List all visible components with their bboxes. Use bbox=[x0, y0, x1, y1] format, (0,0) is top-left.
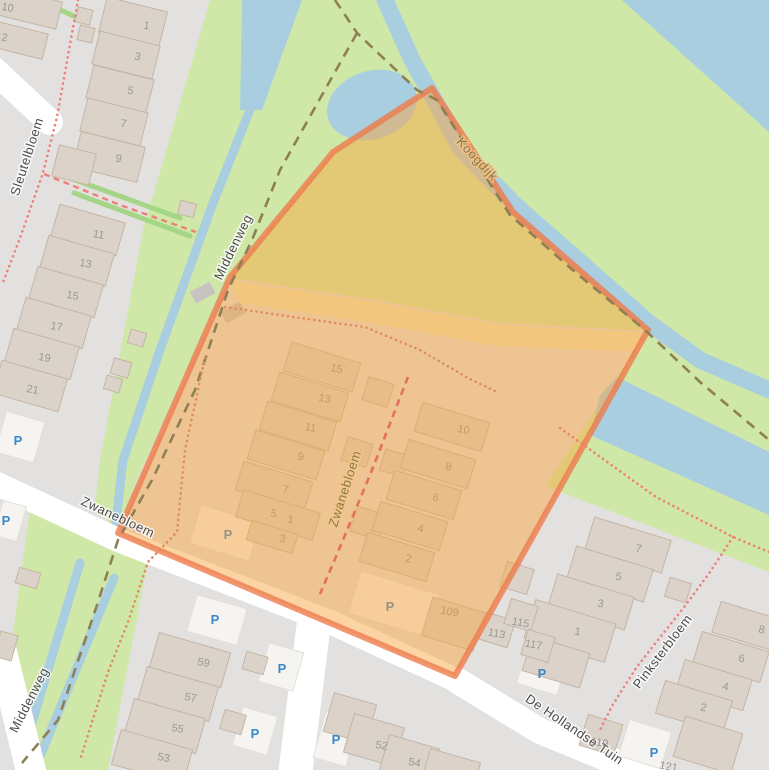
house-number: 21 bbox=[25, 383, 39, 397]
house-number: 54 bbox=[407, 756, 421, 770]
house-number: 17 bbox=[49, 320, 63, 334]
building bbox=[75, 7, 93, 25]
parking-icon: P bbox=[332, 732, 341, 747]
road-south bbox=[295, 622, 314, 770]
house-number: 11 bbox=[92, 228, 105, 242]
parking-icon: P bbox=[538, 666, 547, 681]
parking-icon: P bbox=[14, 433, 23, 448]
house-number: 15 bbox=[65, 289, 79, 303]
house-number: 10 bbox=[0, 1, 14, 15]
house-number: 53 bbox=[156, 751, 170, 765]
house-number: 55 bbox=[170, 722, 184, 736]
map-canvas[interactable]: 15131197513108642109PP Sleutelbloem Midd… bbox=[0, 0, 769, 770]
parking-icon: P bbox=[278, 661, 287, 676]
parking-icon: P bbox=[211, 612, 220, 627]
map-viewport[interactable]: 15131197513108642109PP Sleutelbloem Midd… bbox=[0, 0, 769, 770]
parking-icon: P bbox=[251, 726, 260, 741]
house-number: 59 bbox=[196, 656, 210, 670]
parking-icon: P bbox=[650, 745, 659, 760]
house-number: 13 bbox=[78, 257, 92, 271]
parking-icon: P bbox=[2, 513, 11, 528]
house-number: 52 bbox=[374, 739, 388, 753]
house-number: 19 bbox=[37, 351, 51, 365]
building bbox=[77, 25, 95, 43]
house-number: 57 bbox=[183, 691, 197, 705]
